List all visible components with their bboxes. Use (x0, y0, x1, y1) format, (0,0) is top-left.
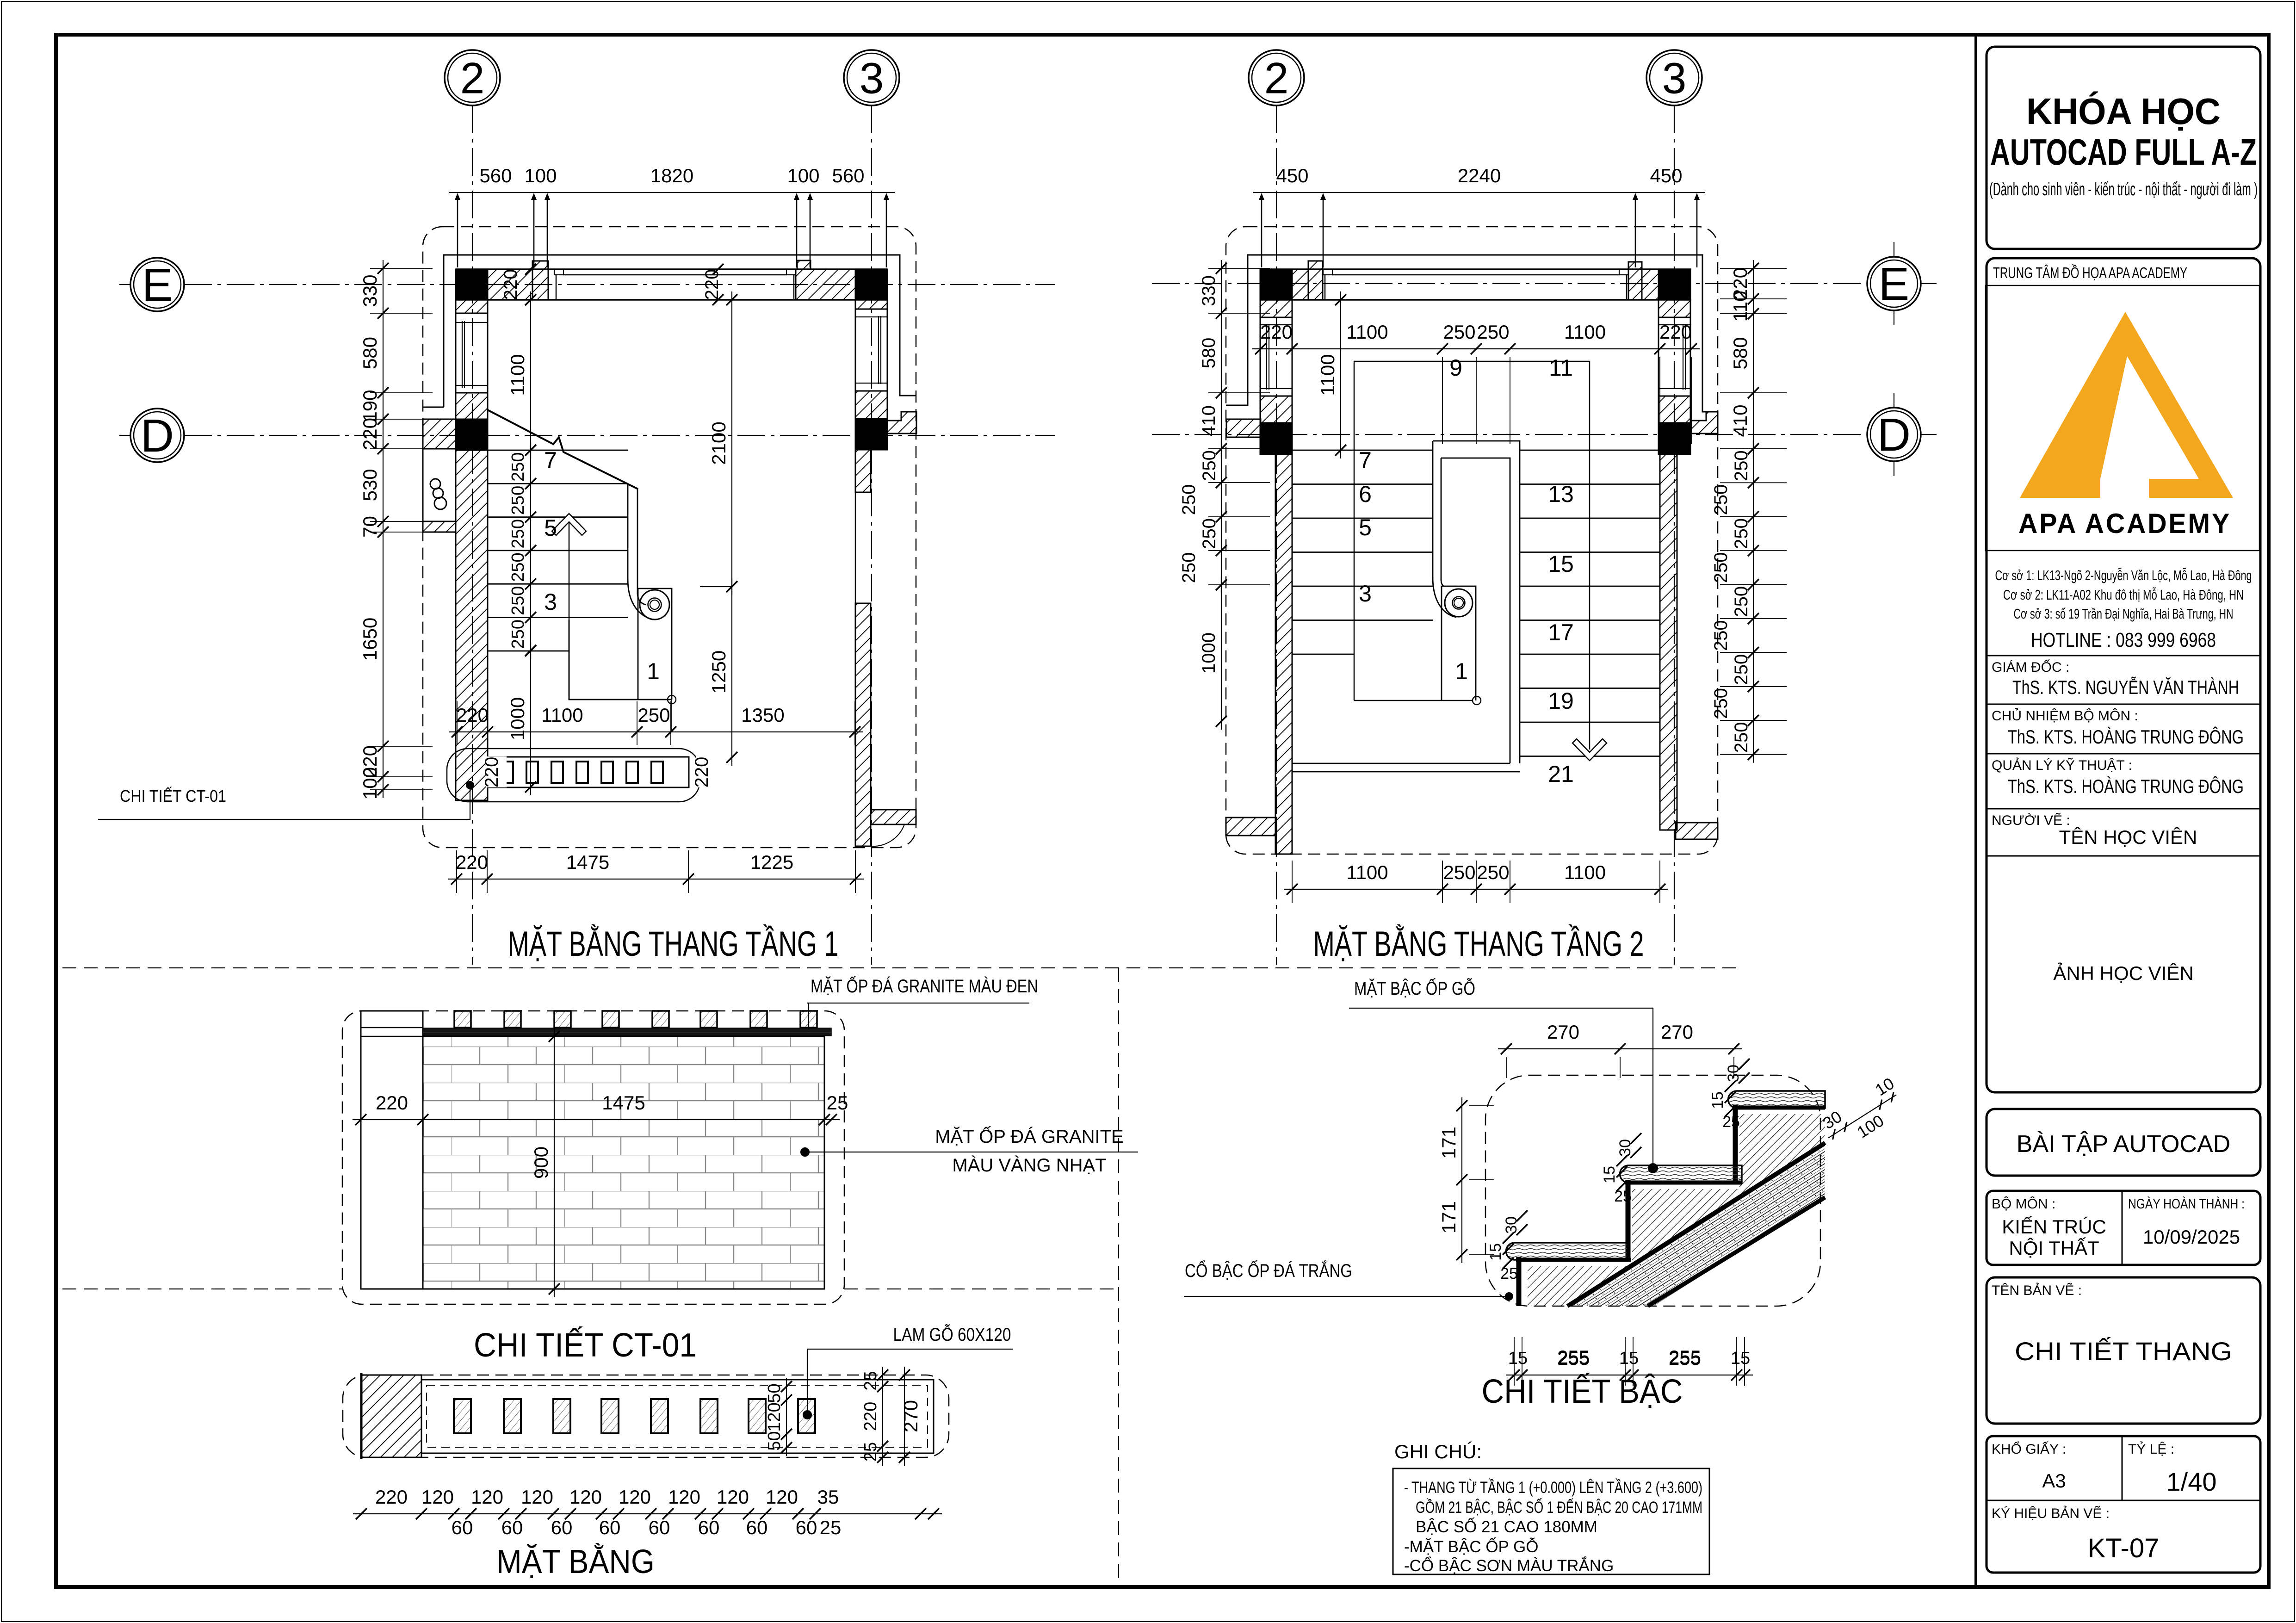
svg-text:250: 250 (508, 486, 528, 515)
svg-text:CHI TIẾT CT-01: CHI TIẾT CT-01 (474, 1326, 697, 1364)
svg-text:50: 50 (765, 1431, 784, 1450)
svg-text:250: 250 (1711, 688, 1731, 719)
svg-text:190: 190 (359, 390, 381, 422)
svg-text:900: 900 (530, 1146, 552, 1179)
svg-text:3: 3 (860, 54, 884, 103)
svg-text:Cơ sở 2: LK11-A02 Khu đô thị M: Cơ sở 2: LK11-A02 Khu đô thị Mỗ Lao, Hà … (2003, 587, 2244, 603)
svg-text:11: 11 (1549, 355, 1573, 381)
svg-text:120: 120 (668, 1486, 700, 1508)
svg-text:60: 60 (698, 1517, 720, 1538)
svg-text:15: 15 (1619, 1349, 1639, 1368)
svg-text:5: 5 (1359, 514, 1372, 540)
svg-text:TÊN HỌC VIÊN: TÊN HỌC VIÊN (2059, 826, 2197, 848)
svg-text:15: 15 (1508, 1349, 1528, 1368)
svg-text:450: 450 (1276, 165, 1308, 186)
svg-text:1100: 1100 (1346, 861, 1388, 883)
svg-text:7: 7 (544, 447, 557, 473)
svg-text:250: 250 (1731, 654, 1751, 685)
svg-text:1100: 1100 (507, 354, 528, 396)
svg-text:BÀI TẬP AUTOCAD: BÀI TẬP AUTOCAD (2017, 1131, 2230, 1158)
svg-text:15: 15 (1487, 1243, 1504, 1261)
svg-text:250: 250 (1199, 450, 1219, 481)
svg-text:60: 60 (452, 1517, 473, 1538)
svg-text:220: 220 (456, 851, 488, 873)
svg-text:9: 9 (1449, 355, 1462, 381)
svg-text:560: 560 (832, 165, 864, 186)
svg-text:1475: 1475 (602, 1092, 645, 1114)
svg-text:220: 220 (359, 418, 381, 450)
svg-text:100: 100 (359, 767, 381, 799)
svg-text:KHÓA HỌC: KHÓA HỌC (2026, 91, 2221, 132)
svg-text:HOTLINE : 083 999 6968: HOTLINE : 083 999 6968 (2031, 629, 2216, 651)
svg-text:120: 120 (471, 1486, 503, 1508)
svg-text:220: 220 (692, 757, 712, 788)
svg-text:ThS. KTS. HOÀNG TRUNG ĐÔNG: ThS. KTS. HOÀNG TRUNG ĐÔNG (2008, 726, 2244, 748)
svg-text:270: 270 (900, 1400, 922, 1432)
svg-text:250: 250 (1179, 552, 1199, 583)
svg-text:D: D (141, 410, 174, 462)
svg-text:QUẢN LÝ KỸ THUẬT :: QUẢN LÝ KỸ THUẬT : (1992, 757, 2132, 773)
svg-text:35: 35 (817, 1486, 839, 1508)
svg-text:250: 250 (1711, 552, 1731, 583)
svg-text:100: 100 (524, 165, 557, 186)
svg-text:KT-07: KT-07 (2088, 1533, 2160, 1563)
svg-text:120: 120 (766, 1486, 798, 1508)
svg-text:250: 250 (508, 552, 528, 582)
svg-text:TỶ LỆ :: TỶ LỆ : (2128, 1441, 2174, 1457)
svg-text:-CỔ BẬC SƠN MÀU TRẮNG: -CỔ BẬC SƠN MÀU TRẮNG (1404, 1556, 1614, 1575)
svg-text:BỘ MÔN :: BỘ MÔN : (1992, 1196, 2055, 1212)
svg-text:560: 560 (479, 165, 512, 186)
svg-text:1350: 1350 (741, 704, 784, 726)
svg-text:1000: 1000 (1199, 632, 1219, 674)
svg-text:250: 250 (1443, 861, 1475, 883)
svg-text:220: 220 (501, 269, 521, 300)
svg-text:7: 7 (1359, 447, 1372, 473)
svg-text:CHI TIẾT CT-01: CHI TIẾT CT-01 (120, 787, 226, 805)
svg-text:NGƯỜI VẼ :: NGƯỜI VẼ : (1992, 812, 2070, 828)
svg-text:270: 270 (1547, 1021, 1579, 1043)
svg-text:410: 410 (1199, 405, 1219, 436)
svg-text:120: 120 (421, 1486, 454, 1508)
svg-text:250: 250 (1731, 450, 1751, 481)
svg-text:220: 220 (702, 269, 722, 300)
svg-text:CHI TIẾT BẬC: CHI TIẾT BẬC (1482, 1373, 1683, 1410)
svg-text:330: 330 (359, 274, 381, 307)
svg-text:220: 220 (375, 1486, 408, 1508)
svg-text:120: 120 (765, 1402, 784, 1431)
svg-text:580: 580 (359, 337, 381, 369)
svg-text:250: 250 (508, 619, 528, 649)
svg-text:25: 25 (827, 1092, 848, 1114)
svg-text:D: D (1877, 409, 1911, 461)
svg-text:60: 60 (746, 1517, 768, 1538)
svg-text:TRUNG TÂM ĐỒ HỌA APA ACADEMY: TRUNG TÂM ĐỒ HỌA APA ACADEMY (1993, 264, 2187, 281)
svg-text:LAM GỖ 60X120: LAM GỖ 60X120 (893, 1324, 1011, 1345)
svg-text:3: 3 (544, 589, 557, 615)
svg-text:60: 60 (599, 1517, 621, 1538)
svg-text:220: 220 (861, 1402, 880, 1431)
svg-text:APA ACADEMY: APA ACADEMY (2018, 508, 2231, 539)
svg-text:60: 60 (796, 1517, 817, 1538)
svg-text:NỘI THẤT: NỘI THẤT (2009, 1237, 2099, 1259)
svg-text:2100: 2100 (708, 421, 730, 465)
svg-text:MẶT BẰNG THANG TẦNG 2: MẶT BẰNG THANG TẦNG 2 (1313, 924, 1644, 964)
svg-text:25: 25 (861, 1442, 880, 1462)
svg-text:15: 15 (1709, 1091, 1727, 1109)
svg-text:450: 450 (1650, 165, 1682, 186)
svg-text:6: 6 (1359, 481, 1372, 507)
svg-text:1100: 1100 (1564, 321, 1606, 343)
svg-text:60: 60 (501, 1517, 523, 1538)
svg-text:1650: 1650 (359, 618, 381, 661)
svg-text:25: 25 (820, 1517, 842, 1538)
svg-text:13: 13 (1548, 481, 1574, 507)
svg-text:1225: 1225 (750, 851, 793, 873)
svg-text:21: 21 (1548, 761, 1574, 787)
svg-text:220: 220 (376, 1092, 408, 1114)
svg-text:-MẶT BẬC ỐP GỖ: -MẶT BẬC ỐP GỖ (1404, 1537, 1538, 1556)
svg-text:120: 120 (569, 1486, 602, 1508)
svg-text:A3: A3 (2042, 1470, 2066, 1492)
svg-text:Cơ sở 1: LK13-Ngõ 2-Nguyễn Văn: Cơ sở 1: LK13-Ngõ 2-Nguyễn Văn Lộc, Mỗ L… (1995, 567, 2252, 583)
svg-text:220: 220 (1659, 321, 1692, 343)
svg-text:2: 2 (460, 54, 485, 103)
svg-text:120: 120 (521, 1486, 553, 1508)
svg-text:2240: 2240 (1458, 165, 1501, 186)
svg-text:30: 30 (1616, 1139, 1634, 1157)
svg-text:KHỔ GIẤY :: KHỔ GIẤY : (1992, 1441, 2066, 1457)
svg-text:TÊN BẢN VẼ :: TÊN BẢN VẼ : (1992, 1282, 2082, 1298)
svg-text:CHỦ NHIỆM BỘ MÔN :: CHỦ NHIỆM BỘ MÔN : (1992, 708, 2138, 724)
svg-text:1250: 1250 (708, 650, 730, 694)
svg-text:ThS. KTS. HOÀNG TRUNG ĐÔNG: ThS. KTS. HOÀNG TRUNG ĐÔNG (2008, 775, 2244, 797)
svg-text:70: 70 (359, 516, 381, 538)
svg-text:1100: 1100 (1317, 354, 1338, 396)
svg-text:1100: 1100 (1346, 321, 1388, 343)
svg-text:ẢNH HỌC VIÊN: ẢNH HỌC VIÊN (2053, 962, 2193, 984)
svg-text:1: 1 (1455, 658, 1468, 684)
svg-text:(Dành cho sinh viên - kiến tr: (Dành cho sinh viên - kiến trúc - nội th… (1989, 180, 2258, 199)
svg-text:15: 15 (1731, 1349, 1750, 1368)
svg-text:2: 2 (1264, 54, 1289, 103)
svg-text:220: 220 (456, 704, 489, 726)
svg-text:10/09/2025: 10/09/2025 (2143, 1226, 2240, 1248)
svg-text:330: 330 (1199, 275, 1219, 306)
svg-text:220: 220 (1260, 321, 1293, 343)
svg-text:AUTOCAD FULL A-Z: AUTOCAD FULL A-Z (1990, 131, 2257, 173)
svg-text:CHI TIẾT THANG: CHI TIẾT THANG (2015, 1337, 2232, 1366)
svg-text:250: 250 (1731, 722, 1751, 753)
svg-text:MÀU VÀNG NHẠT: MÀU VÀNG NHẠT (952, 1155, 1106, 1176)
svg-text:255: 255 (1669, 1346, 1701, 1368)
svg-text:270: 270 (1661, 1021, 1693, 1043)
svg-text:250: 250 (1711, 484, 1731, 515)
svg-text:1100: 1100 (541, 704, 583, 726)
svg-text:3: 3 (1662, 54, 1687, 103)
svg-text:30: 30 (1503, 1216, 1520, 1234)
svg-text:GỒM 21 BẬC, BẬC SỐ 1 ĐẾN BẬC 2: GỒM 21 BẬC, BẬC SỐ 1 ĐẾN BẬC 20 CAO 171M… (1416, 1498, 1702, 1517)
svg-text:E: E (142, 259, 173, 311)
svg-text:GHI CHÚ:: GHI CHÚ: (1394, 1441, 1482, 1462)
svg-text:1820: 1820 (650, 165, 693, 186)
svg-text:220: 220 (482, 757, 502, 788)
svg-text:250: 250 (1731, 518, 1751, 549)
svg-text:MẶT BẬC ỐP GỖ: MẶT BẬC ỐP GỖ (1354, 978, 1475, 999)
svg-text:110: 110 (1729, 291, 1751, 322)
svg-text:250: 250 (1443, 321, 1475, 343)
svg-text:250: 250 (1477, 861, 1509, 883)
svg-text:250: 250 (637, 704, 670, 726)
svg-text:MẶT ỐP ĐÁ GRANITE MÀU ĐEN: MẶT ỐP ĐÁ GRANITE MÀU ĐEN (811, 975, 1038, 997)
svg-text:GIÁM ĐỐC :: GIÁM ĐỐC : (1992, 659, 2069, 675)
svg-text:50: 50 (765, 1383, 784, 1403)
svg-text:1000: 1000 (507, 697, 528, 740)
svg-text:100: 100 (787, 165, 819, 186)
svg-text:255: 255 (1557, 1346, 1590, 1368)
svg-text:250: 250 (1199, 518, 1219, 549)
svg-text:19: 19 (1548, 688, 1574, 714)
svg-text:CỔ BẬC ỐP ĐÁ TRẮNG: CỔ BẬC ỐP ĐÁ TRẮNG (1185, 1259, 1352, 1281)
svg-text:KÝ HIỆU BẢN VẼ :: KÝ HIỆU BẢN VẼ : (1992, 1505, 2110, 1521)
svg-text:1100: 1100 (1564, 861, 1606, 883)
svg-text:530: 530 (359, 469, 381, 501)
svg-text:120: 120 (619, 1486, 651, 1508)
svg-text:580: 580 (1729, 337, 1751, 369)
svg-text:250: 250 (1731, 586, 1751, 617)
svg-text:Cơ sở 3: số 19 Trần Đại Nghĩa,: Cơ sở 3: số 19 Trần Đại Nghĩa, Hai Bà Tr… (2014, 606, 2234, 622)
svg-text:120: 120 (717, 1486, 749, 1508)
svg-text:MẶT BẰNG: MẶT BẰNG (496, 1543, 655, 1580)
svg-text:171: 171 (1438, 1127, 1460, 1159)
svg-text:580: 580 (1199, 338, 1219, 369)
svg-text:E: E (1879, 258, 1910, 310)
svg-text:MẶT BẰNG THANG TẦNG 1: MẶT BẰNG THANG TẦNG 1 (508, 924, 839, 964)
svg-text:3: 3 (1359, 581, 1372, 607)
svg-text:- THANG TỪ TẦNG 1 (+0.000) LÊN: - THANG TỪ TẦNG 1 (+0.000) LÊN TẦNG 2 (+… (1404, 1478, 1702, 1497)
svg-text:250: 250 (508, 519, 528, 548)
svg-text:250: 250 (1179, 484, 1199, 515)
svg-text:410: 410 (1729, 404, 1751, 437)
svg-text:171: 171 (1438, 1201, 1460, 1233)
svg-text:250: 250 (1711, 620, 1731, 651)
svg-text:1: 1 (647, 658, 660, 684)
svg-text:ThS. KTS. NGUYỄN VĂN THÀNH: ThS. KTS. NGUYỄN VĂN THÀNH (2012, 676, 2239, 698)
svg-text:250: 250 (508, 586, 528, 615)
svg-text:MẶT ỐP ĐÁ GRANITE: MẶT ỐP ĐÁ GRANITE (935, 1126, 1123, 1147)
svg-text:17: 17 (1548, 619, 1574, 645)
svg-text:60: 60 (649, 1517, 670, 1538)
svg-text:5: 5 (544, 515, 557, 541)
svg-text:25: 25 (861, 1371, 880, 1390)
svg-text:1475: 1475 (566, 851, 609, 873)
svg-text:15: 15 (1548, 551, 1574, 577)
svg-text:1/40: 1/40 (2166, 1467, 2217, 1496)
svg-text:250: 250 (508, 452, 528, 481)
svg-text:NGÀY HOÀN THÀNH :: NGÀY HOÀN THÀNH : (2128, 1196, 2245, 1212)
svg-text:30: 30 (1725, 1065, 1742, 1082)
svg-text:15: 15 (1601, 1166, 1618, 1183)
svg-text:BẬC SỐ 21 CAO 180MM: BẬC SỐ 21 CAO 180MM (1416, 1518, 1597, 1536)
svg-text:60: 60 (551, 1517, 573, 1538)
svg-text:KIẾN TRÚC: KIẾN TRÚC (2002, 1216, 2106, 1238)
svg-text:250: 250 (1477, 321, 1509, 343)
